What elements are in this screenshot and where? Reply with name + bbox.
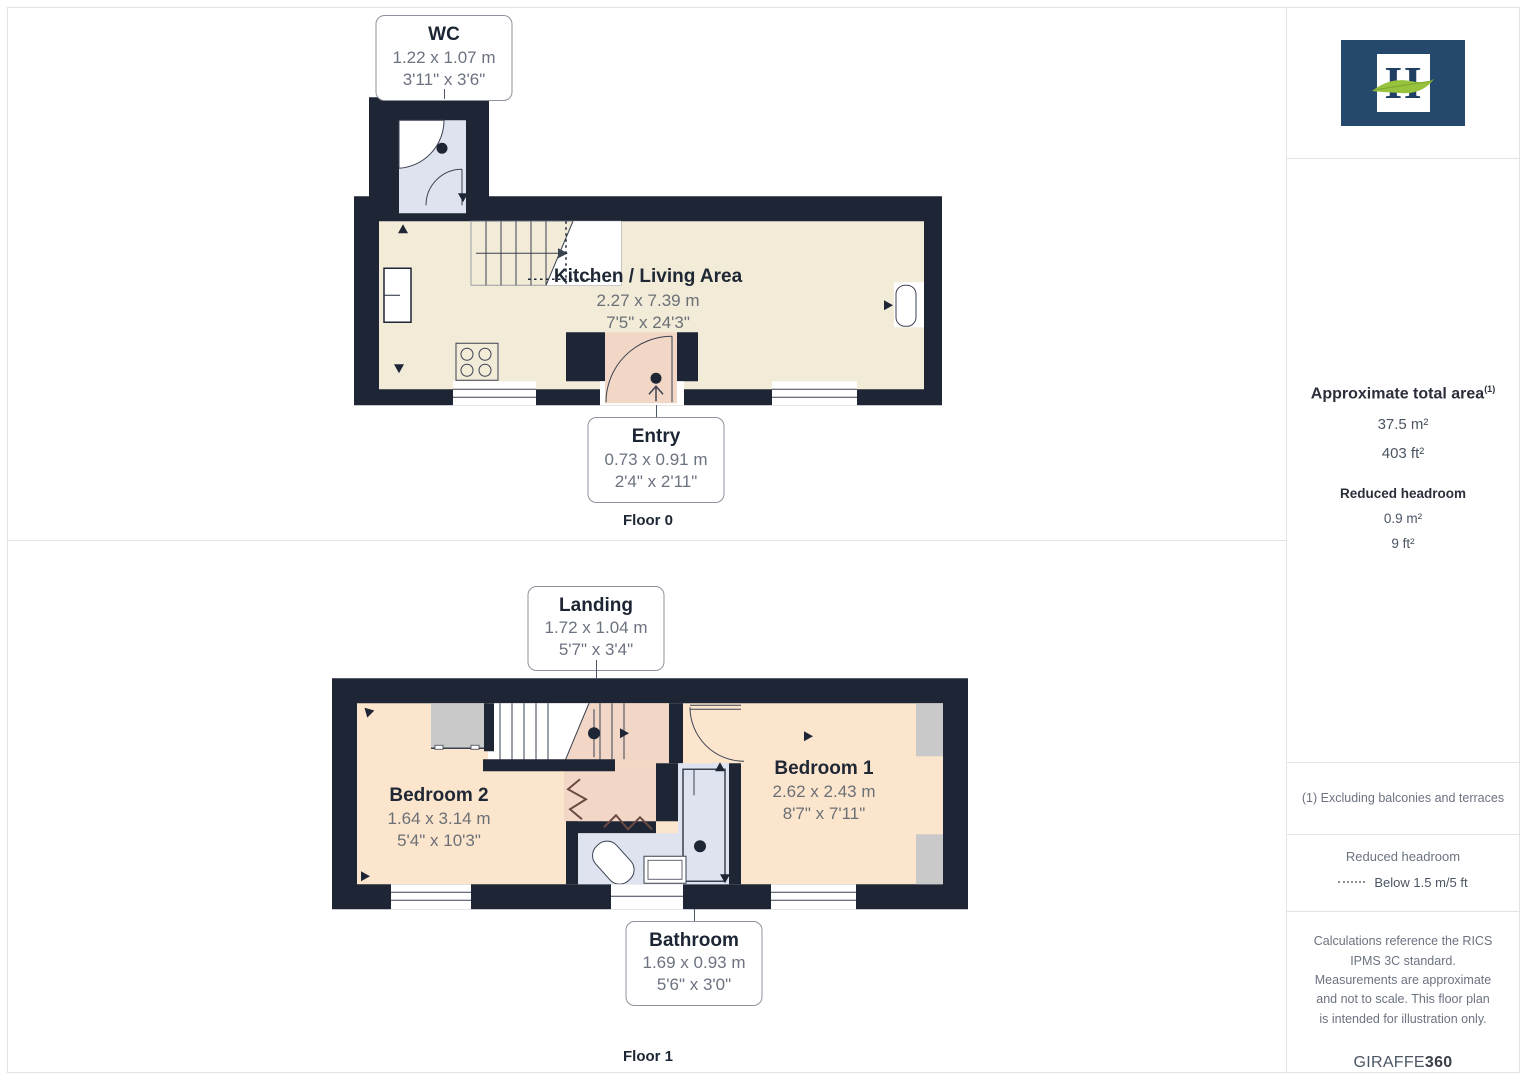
- entry-point-dot: [651, 373, 662, 384]
- room-dim-imperial: 5'6" x 3'0": [642, 974, 745, 996]
- label-connector: [596, 660, 597, 679]
- info-sidebar: H Approximate total area(1) 37.5 m² 403 …: [1287, 8, 1519, 1072]
- room-name: Kitchen / Living Area: [554, 265, 742, 290]
- agency-logo-section: H: [1287, 8, 1519, 159]
- room-dim-imperial: 5'7" x 3'4": [544, 639, 647, 661]
- reduced-headroom-heading: Reduced headroom: [1287, 486, 1519, 501]
- room-name: Bedroom 1: [772, 757, 875, 782]
- label-connector: [694, 909, 695, 921]
- disclaimer-text: Calculations reference the RICS IPMS 3C …: [1313, 932, 1493, 1029]
- door-leaf-icon: [896, 285, 916, 326]
- reduced-headroom-imperial: 9 ft²: [1287, 536, 1519, 551]
- total-area-imperial: 403 ft²: [1287, 445, 1519, 462]
- stairs-pivot-dot: [588, 727, 600, 739]
- room-name: Landing: [544, 594, 647, 618]
- room-name: Bathroom: [642, 929, 745, 953]
- legend-title: Reduced headroom: [1287, 849, 1519, 864]
- disclaimer-section: Calculations reference the RICS IPMS 3C …: [1287, 912, 1519, 1072]
- floor1-title: Floor 1: [623, 1048, 673, 1065]
- room-label-bedroom2: Bedroom 2 1.64 x 3.14 m 5'4" x 10'3": [387, 784, 490, 853]
- room-dim-metric: 2.62 x 2.43 m: [772, 781, 875, 803]
- floor-plan-page: WC 1.22 x 1.07 m 3'11" x 3'6" Kitchen / …: [0, 0, 1527, 1080]
- label-connector: [656, 405, 657, 417]
- shower-drain-dot: [694, 840, 706, 852]
- closet-icon: [431, 703, 484, 749]
- floor-plans-area: WC 1.22 x 1.07 m 3'11" x 3'6" Kitchen / …: [8, 8, 1287, 1072]
- room-dim-metric: 1.72 x 1.04 m: [544, 617, 647, 639]
- window: [391, 884, 471, 909]
- floor0-panel: WC 1.22 x 1.07 m 3'11" x 3'6" Kitchen / …: [8, 8, 1286, 541]
- agency-logo: H: [1341, 40, 1465, 126]
- footnote-marker: (1): [1484, 384, 1495, 394]
- leaf-icon: [1370, 75, 1436, 97]
- footnote-section: (1) Excluding balconies and terraces: [1287, 763, 1519, 835]
- room-label-bathroom: Bathroom 1.69 x 0.93 m 5'6" x 3'0": [625, 921, 762, 1007]
- total-area-metric: 37.5 m²: [1287, 416, 1519, 433]
- wc-room: [399, 120, 466, 213]
- room-dim-imperial: 8'7" x 7'11": [772, 803, 875, 825]
- room-label-bedroom1: Bedroom 1 2.62 x 2.43 m 8'7" x 7'11": [772, 757, 875, 826]
- footnote-text: (1) Excluding balconies and terraces: [1302, 791, 1504, 805]
- room-dim-metric: 1.64 x 3.14 m: [387, 808, 490, 830]
- room-dim-metric: 2.27 x 7.39 m: [554, 290, 742, 312]
- total-area-heading: Approximate total area(1): [1287, 384, 1519, 403]
- room-dim-metric: 1.69 x 0.93 m: [642, 952, 745, 974]
- room-name: Bedroom 2: [387, 784, 490, 809]
- shower-icon: [683, 769, 725, 881]
- room-name: Entry: [604, 425, 707, 449]
- floor1-windows: [391, 884, 856, 909]
- room-dim-imperial: 7'5" x 24'3": [554, 312, 742, 334]
- content-frame: WC 1.22 x 1.07 m 3'11" x 3'6" Kitchen / …: [7, 7, 1520, 1073]
- room-dim-imperial: 2'4" x 2'11": [604, 471, 707, 493]
- legend-section: Reduced headroom Below 1.5 m/5 ft: [1287, 835, 1519, 912]
- label-connector: [444, 89, 445, 99]
- dotted-line-sample: [1338, 881, 1365, 883]
- window: [453, 381, 536, 405]
- window: [771, 884, 856, 909]
- room-dim-imperial: 5'4" x 10'3": [387, 830, 490, 852]
- room-dim-metric: 0.73 x 0.91 m: [604, 449, 707, 471]
- giraffe360-brand: GIRAFFE360: [1313, 1054, 1493, 1072]
- legend-item-label: Below 1.5 m/5 ft: [1374, 875, 1467, 890]
- room-label-kitchen-living: Kitchen / Living Area 2.27 x 7.39 m 7'5"…: [554, 265, 742, 334]
- room-dim-metric: 1.22 x 1.07 m: [392, 47, 495, 69]
- area-summary-section: Approximate total area(1) 37.5 m² 403 ft…: [1287, 159, 1519, 762]
- room-name: WC: [392, 23, 495, 47]
- stove-icon: [456, 343, 498, 380]
- room-dim-imperial: 3'11" x 3'6": [392, 69, 495, 91]
- floor1-panel: Landing 1.72 x 1.04 m 5'7" x 3'4" Bedroo…: [8, 541, 1286, 1073]
- floor0-title: Floor 0: [623, 512, 673, 529]
- window: [772, 381, 857, 405]
- room-label-entry: Entry 0.73 x 0.91 m 2'4" x 2'11": [587, 417, 724, 503]
- reduced-headroom-metric: 0.9 m²: [1287, 511, 1519, 526]
- wc-fixture-dot: [437, 143, 448, 154]
